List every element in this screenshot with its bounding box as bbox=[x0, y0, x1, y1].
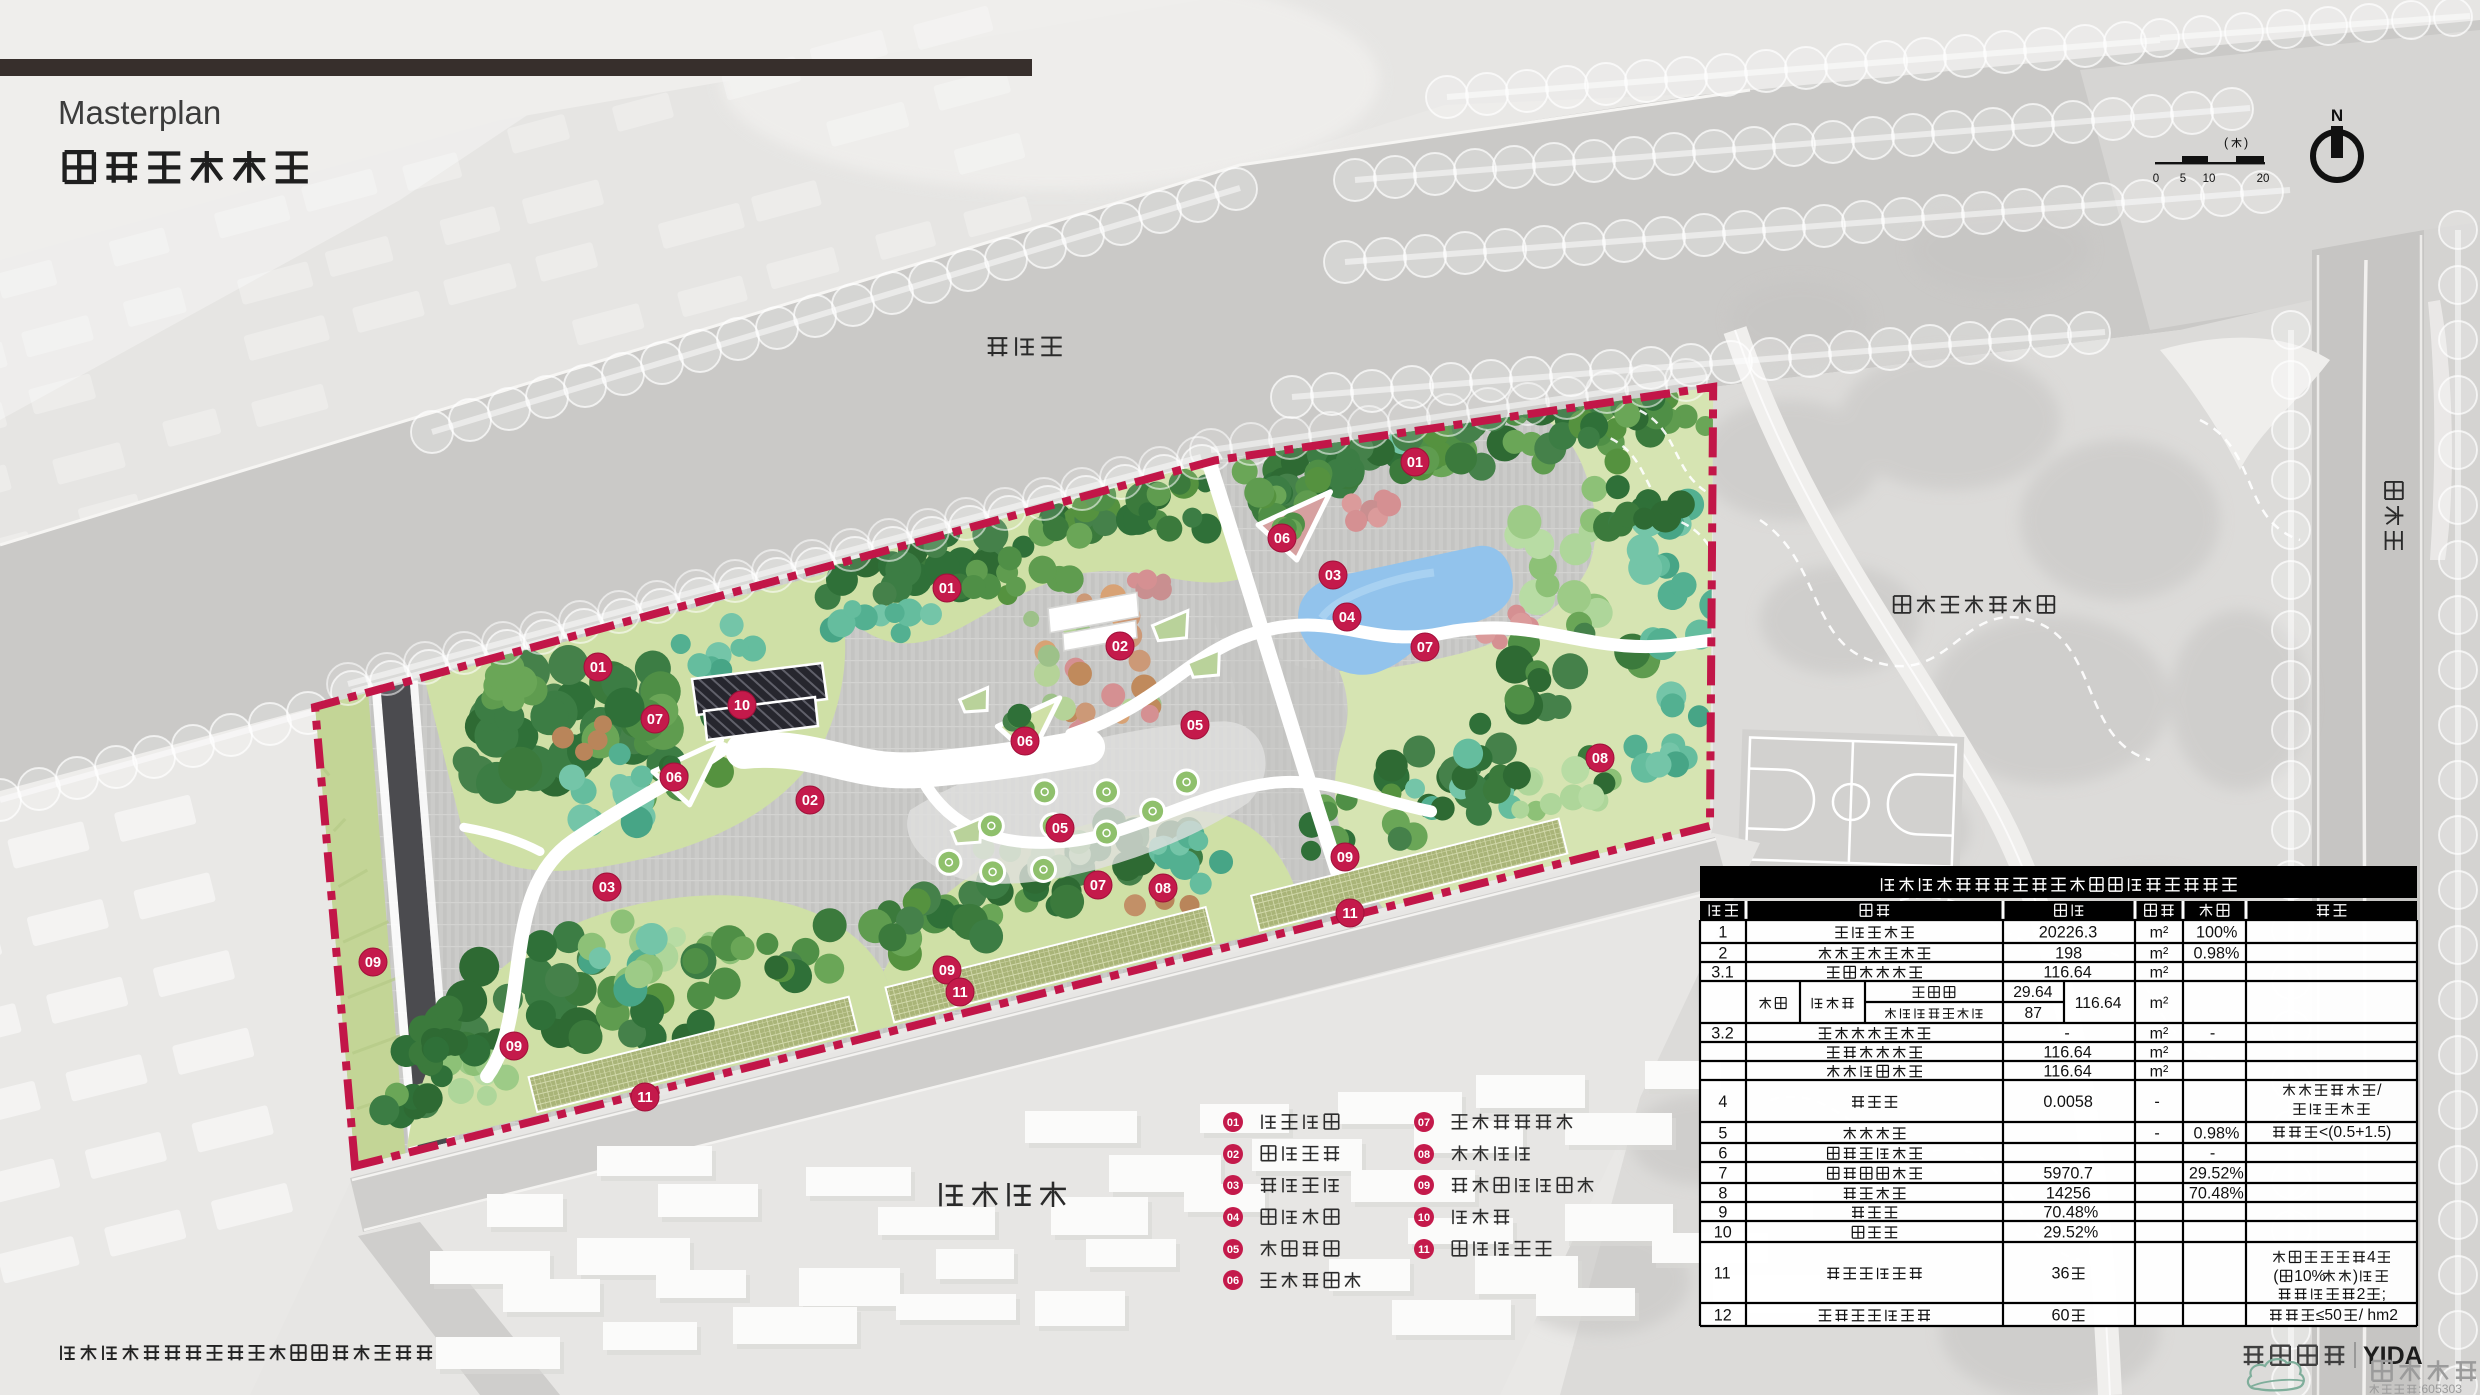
svg-text:2: 2 bbox=[2357, 1286, 2366, 1303]
svg-text:07: 07 bbox=[1418, 1117, 1430, 1129]
svg-text:04: 04 bbox=[1339, 610, 1355, 626]
svg-text:08: 08 bbox=[1155, 881, 1171, 897]
svg-text:(: ( bbox=[2273, 1268, 2279, 1285]
svg-text:<(0.5+1.5): <(0.5+1.5) bbox=[2319, 1124, 2391, 1141]
svg-text:07: 07 bbox=[1417, 640, 1433, 656]
svg-text:4: 4 bbox=[1718, 1093, 1727, 1111]
svg-text:11: 11 bbox=[1714, 1265, 1731, 1283]
svg-text:1: 1 bbox=[1718, 924, 1727, 942]
svg-text:-: - bbox=[2154, 1093, 2159, 1111]
svg-text:87: 87 bbox=[2025, 1005, 2042, 1022]
svg-text:01: 01 bbox=[1227, 1117, 1239, 1129]
svg-text:06: 06 bbox=[666, 770, 682, 786]
svg-text:11: 11 bbox=[1418, 1244, 1430, 1256]
svg-text:10: 10 bbox=[1714, 1224, 1732, 1242]
svg-text:09: 09 bbox=[939, 963, 955, 979]
svg-text:03: 03 bbox=[599, 880, 615, 896]
svg-text:01: 01 bbox=[939, 581, 955, 597]
svg-text:6: 6 bbox=[1718, 1145, 1727, 1163]
svg-text::605303: :605303 bbox=[2418, 1382, 2462, 1395]
svg-text:09: 09 bbox=[365, 955, 381, 971]
svg-text:10: 10 bbox=[1418, 1212, 1430, 1224]
svg-text:06: 06 bbox=[1274, 531, 1290, 547]
svg-text:2: 2 bbox=[1718, 945, 1727, 963]
svg-text:05: 05 bbox=[1187, 718, 1203, 734]
svg-text:0.0058: 0.0058 bbox=[2043, 1093, 2093, 1111]
svg-text:70.48%: 70.48% bbox=[2043, 1204, 2098, 1222]
svg-text:08: 08 bbox=[1418, 1149, 1430, 1161]
svg-text:29.52%: 29.52% bbox=[2189, 1165, 2244, 1183]
svg-text:m²: m² bbox=[2150, 995, 2169, 1012]
svg-text:≤50: ≤50 bbox=[2316, 1307, 2342, 1324]
svg-text:0: 0 bbox=[2153, 173, 2159, 185]
svg-text:4: 4 bbox=[2367, 1249, 2376, 1266]
svg-text:12: 12 bbox=[1714, 1307, 1732, 1325]
svg-text:02: 02 bbox=[802, 793, 818, 809]
svg-text:09: 09 bbox=[1337, 850, 1353, 866]
svg-text:29.64: 29.64 bbox=[2013, 984, 2053, 1001]
svg-text:20226.3: 20226.3 bbox=[2039, 924, 2098, 942]
svg-text:5: 5 bbox=[1718, 1125, 1727, 1143]
svg-text:5970.7: 5970.7 bbox=[2043, 1165, 2093, 1183]
svg-text:-: - bbox=[2210, 1025, 2215, 1043]
svg-text:14256: 14256 bbox=[2046, 1185, 2091, 1203]
svg-text:3.2: 3.2 bbox=[1711, 1025, 1734, 1043]
svg-text:02: 02 bbox=[1112, 639, 1128, 655]
svg-text:09: 09 bbox=[506, 1039, 522, 1055]
svg-text:11: 11 bbox=[952, 985, 967, 1001]
svg-text:10%: 10% bbox=[2294, 1268, 2325, 1285]
svg-text:01: 01 bbox=[1407, 455, 1423, 471]
svg-text:): ) bbox=[2244, 136, 2248, 150]
svg-text:05: 05 bbox=[1227, 1244, 1239, 1256]
svg-text:3.1: 3.1 bbox=[1711, 964, 1734, 982]
svg-text:05: 05 bbox=[1052, 821, 1068, 837]
svg-text:7: 7 bbox=[1718, 1165, 1727, 1183]
svg-text:198: 198 bbox=[2055, 945, 2082, 963]
svg-text:06: 06 bbox=[1017, 734, 1033, 750]
svg-text:-: - bbox=[2064, 1025, 2069, 1043]
svg-text:03: 03 bbox=[1325, 568, 1341, 584]
svg-text:36: 36 bbox=[2052, 1265, 2070, 1283]
svg-text:29.52%: 29.52% bbox=[2043, 1224, 2098, 1242]
svg-text:0.98%: 0.98% bbox=[2194, 945, 2240, 963]
svg-text:116.64: 116.64 bbox=[2043, 1063, 2091, 1081]
svg-text:10: 10 bbox=[2203, 173, 2216, 185]
svg-text:8: 8 bbox=[1718, 1185, 1727, 1203]
svg-text:01: 01 bbox=[590, 660, 606, 676]
svg-text:116.64: 116.64 bbox=[2075, 995, 2122, 1012]
svg-text:m²: m² bbox=[2150, 1026, 2169, 1043]
svg-text:06: 06 bbox=[1227, 1275, 1239, 1287]
svg-text:03: 03 bbox=[1227, 1180, 1239, 1192]
svg-text:): ) bbox=[2353, 1268, 2358, 1285]
svg-text:9: 9 bbox=[1718, 1204, 1727, 1222]
svg-text:m²: m² bbox=[2150, 965, 2169, 982]
svg-text:m²: m² bbox=[2150, 925, 2169, 942]
svg-text:;: ; bbox=[2382, 1286, 2386, 1303]
svg-text:04: 04 bbox=[1227, 1212, 1240, 1224]
svg-text:/: / bbox=[2377, 1082, 2382, 1099]
svg-text:07: 07 bbox=[647, 712, 663, 728]
svg-text:08: 08 bbox=[1592, 751, 1608, 767]
svg-text:-: - bbox=[2210, 1145, 2215, 1163]
svg-text:Masterplan: Masterplan bbox=[58, 94, 221, 131]
svg-text:11: 11 bbox=[1342, 906, 1357, 922]
svg-text:02: 02 bbox=[1227, 1149, 1239, 1161]
svg-text:5: 5 bbox=[2180, 173, 2186, 185]
svg-text:N: N bbox=[2331, 106, 2343, 125]
svg-text:07: 07 bbox=[1090, 878, 1106, 894]
svg-text:116.64: 116.64 bbox=[2043, 1044, 2091, 1062]
svg-text:09: 09 bbox=[1418, 1180, 1430, 1192]
svg-text:m²: m² bbox=[2150, 946, 2169, 963]
svg-text:70.48%: 70.48% bbox=[2189, 1185, 2244, 1203]
svg-text:-: - bbox=[2154, 1125, 2159, 1143]
svg-text:/ hm2: / hm2 bbox=[2359, 1307, 2398, 1324]
svg-text:m²: m² bbox=[2150, 1064, 2169, 1081]
svg-text:116.64: 116.64 bbox=[2043, 964, 2091, 982]
svg-text:0.98%: 0.98% bbox=[2194, 1125, 2240, 1143]
svg-text:20: 20 bbox=[2257, 173, 2270, 185]
svg-text:10: 10 bbox=[734, 698, 750, 714]
svg-text:100%: 100% bbox=[2196, 924, 2237, 942]
svg-text:11: 11 bbox=[637, 1090, 652, 1106]
svg-text:m²: m² bbox=[2150, 1045, 2169, 1062]
svg-text:60: 60 bbox=[2052, 1307, 2070, 1325]
